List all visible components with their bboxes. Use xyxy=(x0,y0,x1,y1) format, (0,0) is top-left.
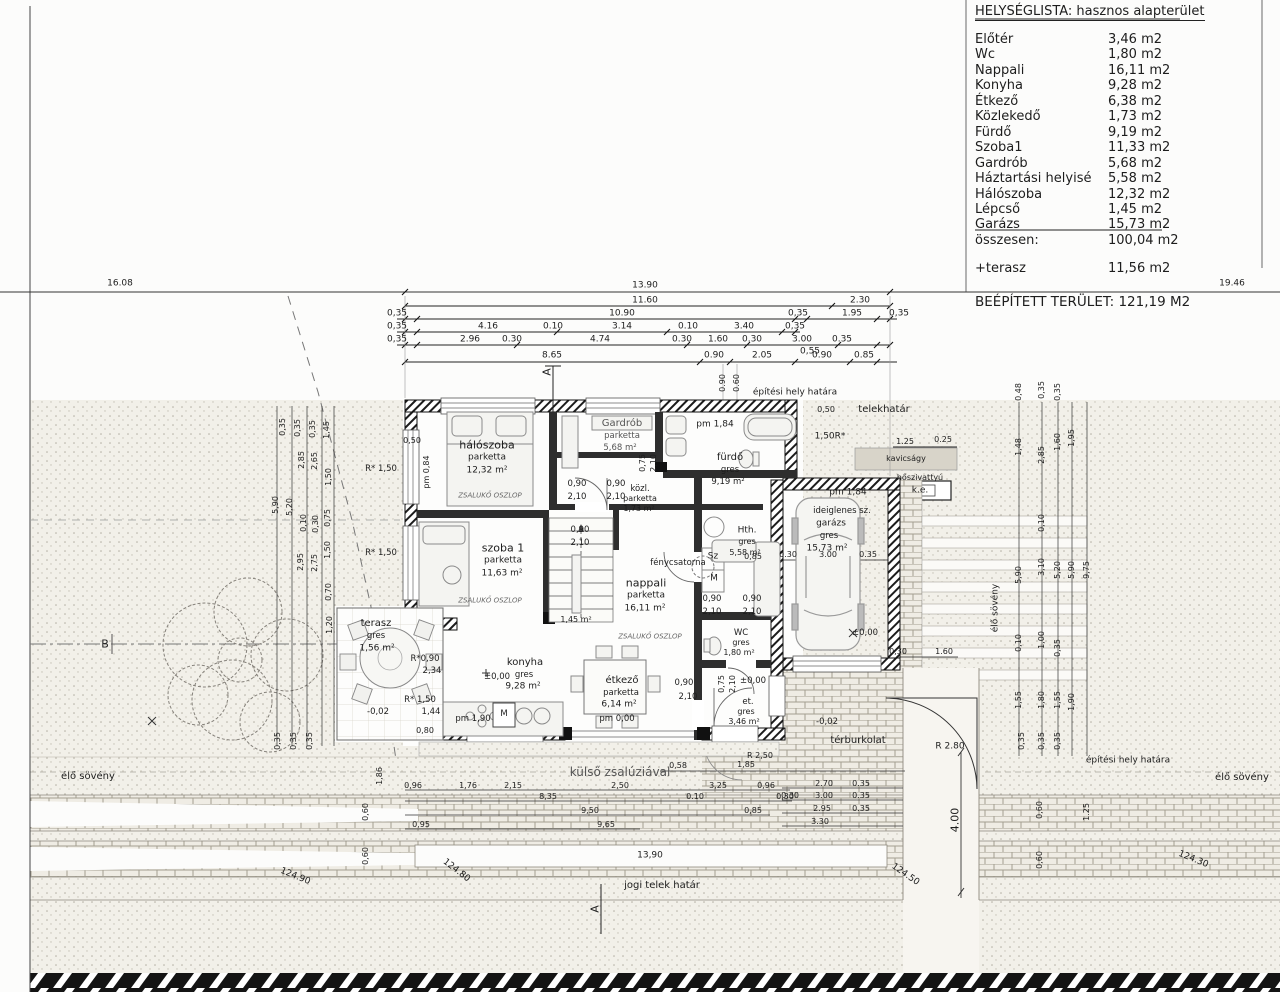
dim-label: 0,35 xyxy=(279,418,287,436)
dim-label: 4.74 xyxy=(590,336,610,345)
room-finish: parketta xyxy=(603,689,639,698)
dim-label: 1,50R* xyxy=(815,433,846,442)
room-name: ideiglenes sz. xyxy=(813,507,871,516)
dim-label: 0,60 xyxy=(1036,801,1044,819)
dim-label: 0,60 xyxy=(362,847,370,865)
dim-label: 0.10 xyxy=(686,793,704,801)
table-row-name: Lépcső xyxy=(975,203,1020,216)
appliance-label: Sz xyxy=(708,553,718,562)
table-row-name: Közlekedő xyxy=(975,110,1041,123)
dim-label: 0.30 xyxy=(781,792,799,800)
dim-label: R* 1,50 xyxy=(365,465,397,474)
dim-label: 0,10 xyxy=(1038,514,1046,532)
floor-plan-sheet: HELYSÉGLISTA: hasznos alapterület Előtér… xyxy=(0,0,1280,992)
dim-label: 3.30 xyxy=(811,818,829,826)
room-finish: parketta xyxy=(468,454,506,463)
dim-label: 2,65 xyxy=(311,452,319,470)
dim-label: 8,35 xyxy=(539,793,557,801)
site-label: kavicságy xyxy=(886,455,926,463)
dim-label: 1,20 xyxy=(326,616,334,634)
room-finish: gres xyxy=(732,639,749,647)
appliance-label: M xyxy=(710,575,718,584)
dim-label: 0.30 xyxy=(672,336,692,345)
site-label: külső zsalúziával xyxy=(570,766,671,778)
dim-label: 1,80 xyxy=(1038,691,1046,709)
level-label: ±0,00 xyxy=(740,677,766,686)
dim-label: 1,86 xyxy=(376,767,384,785)
dim-label: 2.95 xyxy=(813,805,831,813)
table-row-name: +terasz xyxy=(975,262,1026,275)
dim-label: 9,65 xyxy=(597,821,615,829)
built-area-label: BEÉPÍTETT TERÜLET: 121,19 M2 xyxy=(975,296,1190,310)
table-row-value: 9,19 m2 xyxy=(1108,126,1162,139)
table-row-value: 5,68 m2 xyxy=(1108,157,1162,170)
dim-label: 1,50 xyxy=(325,468,333,486)
dim-label: 0.85 xyxy=(854,352,874,361)
table-title: HELYSÉGLISTA: hasznos alapterület xyxy=(975,5,1205,21)
table-row-value: 12,32 m2 xyxy=(1108,188,1170,201)
dim-label: 0.60 xyxy=(733,374,741,392)
dim-label: 1.25 xyxy=(896,438,914,446)
dim-label: R* 1,50 xyxy=(404,696,436,705)
dim-label: 11.60 xyxy=(632,297,658,306)
window-dim: pm 0,84 xyxy=(423,455,431,488)
dim-label: 0,35 xyxy=(1018,732,1026,750)
table-row-value: 9,28 m2 xyxy=(1108,79,1162,92)
dim-label: 1,44 xyxy=(422,708,441,717)
section-marker: A xyxy=(542,368,553,376)
dim-label: 0,80 xyxy=(416,727,434,735)
column-note: ZSALUKŐ OSZLOP xyxy=(458,493,522,500)
room-finish: parketta xyxy=(627,592,665,601)
dim-label: 0.35 xyxy=(852,780,870,788)
room-finish: parketta xyxy=(484,557,522,566)
dim-label: 8.65 xyxy=(542,352,562,361)
window-dim: pm 1,84 xyxy=(696,421,733,430)
dim-label: 0,35 xyxy=(387,336,407,345)
room-name: konyha xyxy=(507,658,543,668)
room-finish: gres xyxy=(737,708,754,716)
room-area: 16,11 m² xyxy=(624,605,665,614)
room-area: 5,68 m² xyxy=(603,444,636,453)
dim-label: 3,25 xyxy=(709,782,727,790)
drawing-edge-band xyxy=(30,973,1280,992)
dim-label: 0.10 xyxy=(678,323,698,332)
dim-label: 0,35 xyxy=(1038,732,1046,750)
dim-label: 0,70 xyxy=(325,583,333,601)
dim-label: 0,10 xyxy=(300,514,308,532)
site-label: élő sövény xyxy=(61,772,115,782)
dim-label: 2,95 xyxy=(297,553,305,571)
dim-label: 16.08 xyxy=(107,280,133,289)
table-row-name: Étkező xyxy=(975,95,1018,108)
room-feature: fénycsatorna xyxy=(650,559,705,568)
room-name: étkező xyxy=(605,676,638,686)
door-dim: 0,75 xyxy=(639,454,647,472)
table-row-name: Előtér xyxy=(975,33,1013,46)
column-note: ZSALUKŐ OSZLOP xyxy=(618,634,682,641)
room-area: 9,19 m² xyxy=(711,478,744,487)
dim-label: 0,35 xyxy=(387,323,407,332)
site-label: építési hely határa xyxy=(1086,757,1170,766)
door-dim: 0,90 xyxy=(743,595,762,604)
dim-label: 0,30 xyxy=(889,648,907,656)
table-row-value: 6,38 m2 xyxy=(1108,95,1162,108)
dim-label: 4.16 xyxy=(478,323,498,332)
dim-label: 0,96 xyxy=(404,782,422,790)
table-row-name: Háztartási helyisé xyxy=(975,172,1091,185)
table-row-value: 5,58 m2 xyxy=(1108,172,1162,185)
dim-label: 0,95 xyxy=(412,821,430,829)
dim-label: 1.60 xyxy=(935,648,953,656)
room-name: et. xyxy=(742,698,753,707)
dim-label: 2,34 xyxy=(423,667,442,676)
dim-label: 13.90 xyxy=(632,282,658,291)
dim-label: 1,60 xyxy=(1054,433,1062,451)
section-marker: B xyxy=(101,639,109,650)
dim-label: 0,10 xyxy=(1015,634,1023,652)
dim-label: 3.40 xyxy=(734,323,754,332)
room-area: 1,80 m² xyxy=(723,649,754,657)
table-row-value: 1,45 m2 xyxy=(1108,203,1162,216)
dim-label: R 2.80 xyxy=(935,743,964,752)
window-dim: pm 0,00 xyxy=(599,715,634,724)
table-row-name: Szoba1 xyxy=(975,141,1023,154)
dim-label: 3.00 xyxy=(819,551,837,559)
room-finish: gres xyxy=(721,466,739,475)
site-label: k.e. xyxy=(912,487,928,496)
dim-label: 0,48 xyxy=(1015,383,1023,401)
room-area: 1,45 m² xyxy=(560,616,591,624)
dim-label: 0.30 xyxy=(502,336,522,345)
door-dim: 2,10 xyxy=(729,675,737,693)
dim-label: R 2,50 xyxy=(747,752,773,760)
dim-label: 0,50 xyxy=(817,406,835,414)
door-dim: 0,90 xyxy=(568,480,587,489)
site-label: térburkolat xyxy=(830,736,885,746)
dim-label: 0,35 xyxy=(1054,732,1062,750)
dim-label: 0,60 xyxy=(1036,851,1044,869)
room-name: Hth. xyxy=(738,527,757,536)
table-row-name: Fürdő xyxy=(975,126,1011,139)
table-row-name: összesen: xyxy=(975,234,1039,247)
dim-label: 0,35 xyxy=(306,732,314,750)
door-dim: 0,75 xyxy=(718,675,726,693)
dim-label: 2,75 xyxy=(311,554,319,572)
dim-label: 0,50 xyxy=(403,437,421,445)
site-label: hőszivattyú xyxy=(897,474,943,482)
room-area: 3,46 m² xyxy=(728,718,759,726)
table-row-value: 15,73 m2 xyxy=(1108,218,1170,231)
dim-label: 5,90 xyxy=(1068,561,1076,579)
table-row-name: Gardrób xyxy=(975,157,1028,170)
dim-label: 0,35 xyxy=(788,310,808,319)
table-row-value: 11,33 m2 xyxy=(1108,141,1170,154)
site-label: jogi telek határ xyxy=(624,881,700,891)
site-label: telekhatár xyxy=(858,405,909,415)
door-dim: 0,90 xyxy=(703,595,722,604)
dim-label: 0.90 xyxy=(719,374,727,392)
dim-label: 2,50 xyxy=(611,782,629,790)
dim-label: 3.00 xyxy=(792,336,812,345)
room-finish: parketta xyxy=(604,432,640,441)
dim-label: 0.35 xyxy=(859,551,877,559)
room-name: nappali xyxy=(626,578,667,589)
table-row-value: 1,80 m2 xyxy=(1108,48,1162,61)
dim-label: 0,35 xyxy=(274,732,282,750)
dim-label: 19.46 xyxy=(1219,280,1245,289)
dim-label: 13,90 xyxy=(637,852,663,861)
dim-label: 2.96 xyxy=(460,336,480,345)
dim-label: 1,55 xyxy=(1054,691,1062,709)
dim-label: 5,20 xyxy=(1054,561,1062,579)
room-name: közl. xyxy=(630,485,649,494)
dim-label: 1,48 xyxy=(1015,438,1023,456)
dim-label: 0,35 xyxy=(1054,639,1062,657)
room-name: garázs xyxy=(816,520,846,529)
room-finish: gres xyxy=(738,538,755,546)
appliance-label: M xyxy=(500,710,507,719)
dim-label: 2,85 xyxy=(1038,446,1046,464)
dim-label: 2.70 xyxy=(815,780,833,788)
door-dim: 2,10 xyxy=(568,493,587,502)
room-name: terasz xyxy=(361,619,392,629)
dim-label: 0,30 xyxy=(312,515,320,533)
level-label: ±0,00 xyxy=(852,629,878,638)
dim-label: 1.60 xyxy=(708,336,728,345)
dim-label: 0,96 xyxy=(757,782,775,790)
dim-label: 1,50 xyxy=(324,541,332,559)
level-label: ±0,00 xyxy=(484,673,510,682)
dim-label: 0,35 xyxy=(290,732,298,750)
dim-label: 0,58 xyxy=(669,762,687,770)
room-finish: gres xyxy=(820,532,838,541)
room-area: 1,73 m² xyxy=(623,505,654,513)
table-row-value: 3,46 m2 xyxy=(1108,33,1162,46)
dim-label: 0.35 xyxy=(852,792,870,800)
dim-label: 0.25 xyxy=(934,436,952,444)
room-area: 11,63 m² xyxy=(481,570,522,579)
dim-label: 9,75 xyxy=(1083,561,1091,579)
dim-label: 1,85 xyxy=(737,761,755,769)
dim-label: 1,95 xyxy=(1068,429,1076,447)
dim-label: 3.00 xyxy=(815,792,833,800)
dim-label: 4.00 xyxy=(950,808,961,833)
room-finish: gres xyxy=(515,671,533,680)
room-name: szoba 1 xyxy=(482,543,524,554)
door-dim: 2,10 xyxy=(703,608,722,617)
dim-label: 0.10 xyxy=(543,323,563,332)
dim-label: 0,85 xyxy=(744,553,762,561)
door-dim: 2,10 xyxy=(679,693,698,702)
dim-label: 0,35 xyxy=(294,419,302,437)
room-area: 12,32 m² xyxy=(466,467,507,476)
table-row-name: Nappali xyxy=(975,64,1024,77)
level-label: -0,02 xyxy=(367,708,389,717)
dim-label: 1,45 xyxy=(323,421,331,439)
dim-label: 9,50 xyxy=(581,807,599,815)
section-marker: A xyxy=(590,905,601,913)
dim-label: 0.35 xyxy=(832,336,852,345)
dim-label: 0.30 xyxy=(742,336,762,345)
table-row-name: Wc xyxy=(975,48,995,61)
table-row-name: Hálószoba xyxy=(975,188,1042,201)
dim-label: 0,75 xyxy=(324,509,332,527)
door-dim: 2,10 xyxy=(571,539,590,548)
dim-label: 0,35 xyxy=(309,420,317,438)
dim-label: 1,90 xyxy=(1068,693,1076,711)
dim-label: 1,76 xyxy=(459,782,477,790)
door-dim: 2,10 xyxy=(743,608,762,617)
dim-label: 5,90 xyxy=(1015,566,1023,584)
dim-label: 3.14 xyxy=(612,323,632,332)
door-dim: 0,90 xyxy=(675,679,694,688)
dim-label: 1.95 xyxy=(842,310,862,319)
dim-label: R*0,90 xyxy=(410,655,439,664)
dim-label: 0,60 xyxy=(362,803,370,821)
dim-label: 0,35 xyxy=(1038,381,1046,399)
room-area: 9,28 m² xyxy=(505,683,540,692)
room-finish: parketta xyxy=(623,495,657,503)
dim-label: 0.30 xyxy=(779,551,797,559)
dim-label: 5,20 xyxy=(286,498,294,516)
room-finish: gres xyxy=(367,632,385,641)
dim-label: 5,90 xyxy=(272,496,280,514)
dim-label: 0,35 xyxy=(785,323,805,332)
site-label: élő sövény xyxy=(1215,773,1269,783)
room-area: 6,14 m² xyxy=(601,701,636,710)
window-dim: pm 1,84 xyxy=(829,489,866,498)
level-label: -0,02 xyxy=(816,718,838,727)
dim-label: 10.90 xyxy=(609,310,635,319)
dim-label: 0,35 xyxy=(889,310,909,319)
table-row-name: Garázs xyxy=(975,218,1020,231)
dim-label: 1,55 xyxy=(1015,691,1023,709)
table-row-value: 11,56 m2 xyxy=(1108,262,1170,275)
dim-label: 2.30 xyxy=(850,297,870,306)
dim-label: 1,00 xyxy=(1038,631,1046,649)
dim-label: 1.25 xyxy=(1083,803,1091,821)
door-dim: 2,10 xyxy=(650,454,658,472)
dim-label: 0.90 xyxy=(704,352,724,361)
dim-label: 0.35 xyxy=(852,805,870,813)
table-row-value: 16,11 m2 xyxy=(1108,64,1170,77)
dim-label: R* 1,50 xyxy=(365,549,397,558)
room-name: WC xyxy=(734,629,748,638)
dim-label: 3,10 xyxy=(1038,558,1046,576)
room-area: 1,56 m² xyxy=(359,645,394,654)
dim-label: 0,35 xyxy=(1054,383,1062,401)
dim-label: 2,15 xyxy=(504,782,522,790)
dim-label: 0,85 xyxy=(744,807,762,815)
window-dim: pm 1,90 xyxy=(455,715,490,724)
door-dim: 0,90 xyxy=(607,480,626,489)
table-row-name: Konyha xyxy=(975,79,1023,92)
dim-label: 2,85 xyxy=(298,451,306,469)
room-name: hálószoba xyxy=(459,440,514,451)
site-label: építési hely határa xyxy=(753,389,837,398)
dim-label: 0.90 xyxy=(812,352,832,361)
table-row-value: 100,04 m2 xyxy=(1108,234,1179,247)
dim-label: 0,35 xyxy=(387,310,407,319)
room-name: Gardrób xyxy=(602,419,643,429)
site-label: élő sövény xyxy=(992,584,1001,633)
door-dim: 0,90 xyxy=(571,526,590,535)
dim-label: 2.05 xyxy=(752,352,772,361)
door-dim: 2,10 xyxy=(607,493,626,502)
table-row-value: 1,73 m2 xyxy=(1108,110,1162,123)
column-note: ZSALUKŐ OSZLOP xyxy=(458,598,522,605)
room-name: fürdő xyxy=(717,453,743,463)
